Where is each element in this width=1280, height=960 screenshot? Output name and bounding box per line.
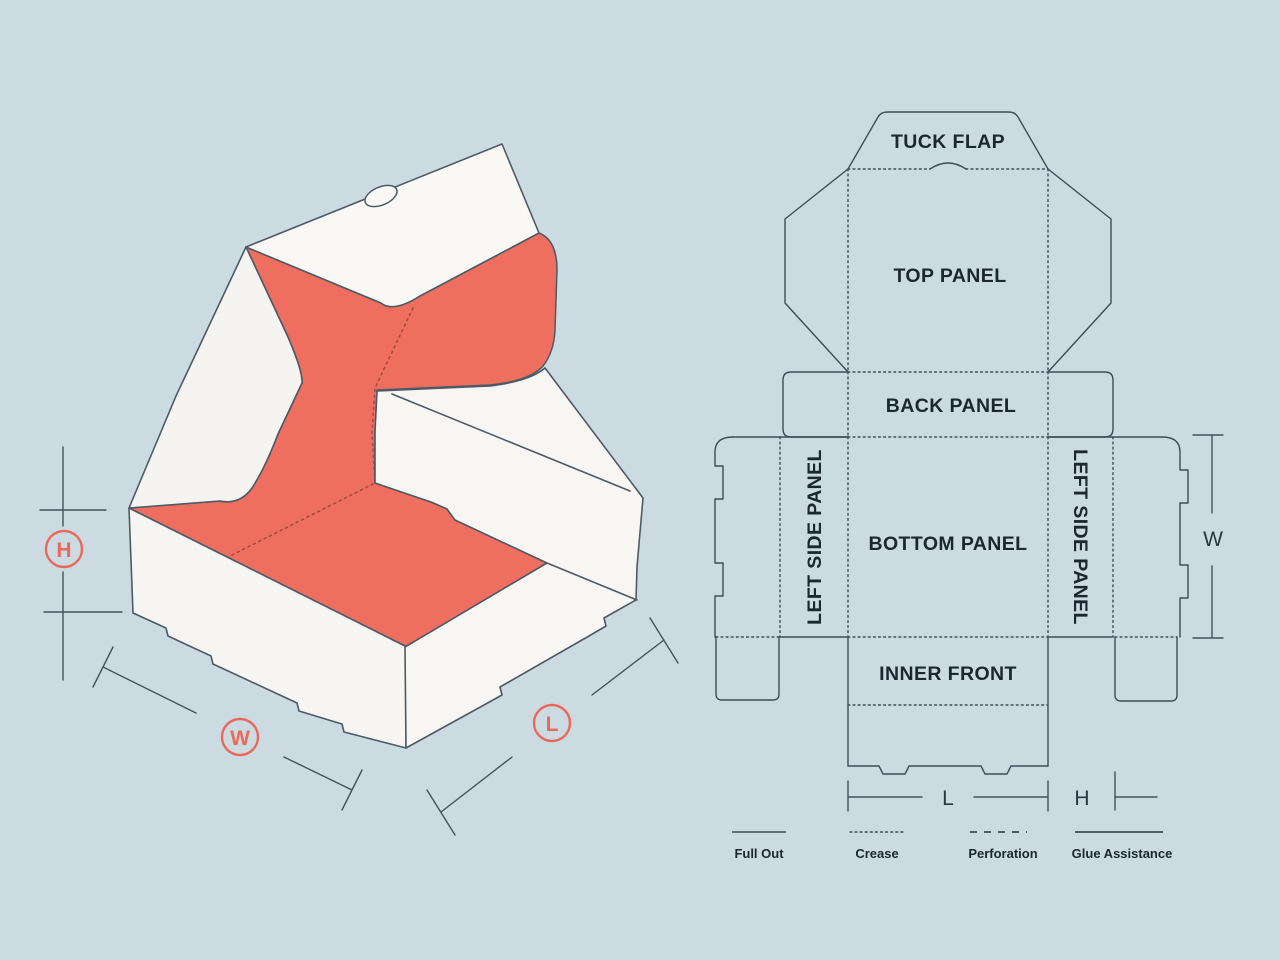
dieline-h-letter: H <box>1074 787 1089 810</box>
dieline-dim-l: L <box>848 781 1048 811</box>
dieline-w-letter: W <box>1203 528 1223 551</box>
right-side-panel-label: LEFT SIDE PANEL <box>1069 449 1091 625</box>
back-panel-label: BACK PANEL <box>886 395 1016 417</box>
tuck-flap-label: TUCK FLAP <box>891 131 1005 153</box>
legend-item-perforation: Perforation <box>968 832 1037 861</box>
packaging-dieline-diagram: H W L <box>0 0 1280 960</box>
legend-label-crease: Crease <box>855 846 898 861</box>
legend: Full Out Crease Perforation Glue Assista… <box>732 832 1172 861</box>
inner-front-label: INNER FRONT <box>879 663 1017 685</box>
width-letter: W <box>230 727 250 750</box>
legend-label-full-out: Full Out <box>734 846 784 861</box>
dieline-l-letter: L <box>942 787 954 810</box>
dieline: TUCK FLAP TOP PANEL BACK PANEL LEFT SIDE… <box>715 112 1223 811</box>
legend-label-glue-assistance: Glue Assistance <box>1072 846 1173 861</box>
top-panel-label: TOP PANEL <box>893 265 1006 287</box>
dieline-dim-h: H <box>1074 772 1157 810</box>
length-letter: L <box>546 713 559 736</box>
legend-item-crease: Crease <box>850 832 904 861</box>
legend-item-glue-assistance: Glue Assistance <box>1072 832 1173 861</box>
dimension-height: H <box>40 447 122 680</box>
bottom-panel-label: BOTTOM PANEL <box>869 533 1028 555</box>
legend-label-perforation: Perforation <box>968 846 1037 861</box>
box-illustration: H W L <box>40 144 678 835</box>
left-side-panel-label: LEFT SIDE PANEL <box>804 449 826 625</box>
legend-item-full-out: Full Out <box>732 832 786 861</box>
height-letter: H <box>56 539 71 562</box>
dieline-dim-w: W <box>1193 435 1223 638</box>
